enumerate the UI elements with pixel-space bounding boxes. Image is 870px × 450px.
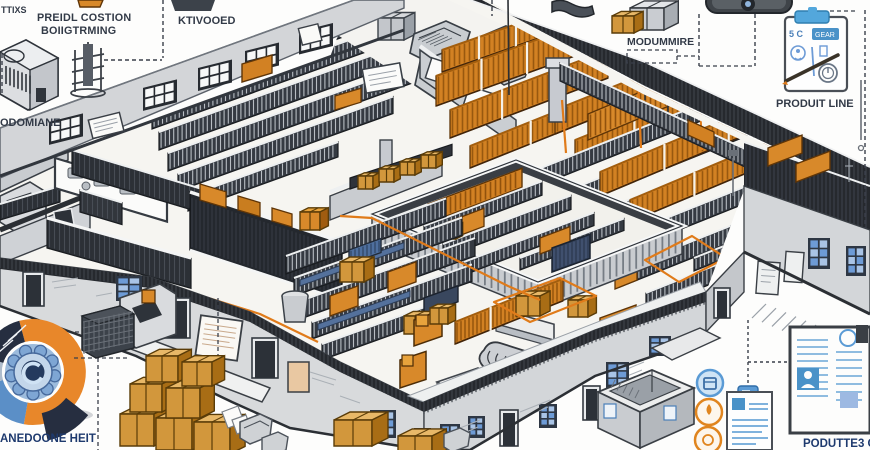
svg-text:BOIIGTRMING: BOIIGTRMING xyxy=(41,25,116,37)
svg-text:5 C: 5 C xyxy=(789,29,804,39)
svg-text:GEAR: GEAR xyxy=(815,32,835,39)
svg-text:PREIDL COSTION: PREIDL COSTION xyxy=(37,12,131,24)
svg-text:PODUTTE3 C: PODUTTE3 C xyxy=(803,438,870,450)
svg-text:TTIXS: TTIXS xyxy=(1,5,27,15)
svg-text:KTIVOOED: KTIVOOED xyxy=(178,15,236,27)
svg-text:ANEDOONE HEIT: ANEDOONE HEIT xyxy=(0,433,96,445)
svg-text:ODOMIANE: ODOMIANE xyxy=(0,117,61,129)
svg-text:PRODUIT LINE: PRODUIT LINE xyxy=(776,98,854,110)
svg-text:MODUMMIRE: MODUMMIRE xyxy=(627,36,694,48)
